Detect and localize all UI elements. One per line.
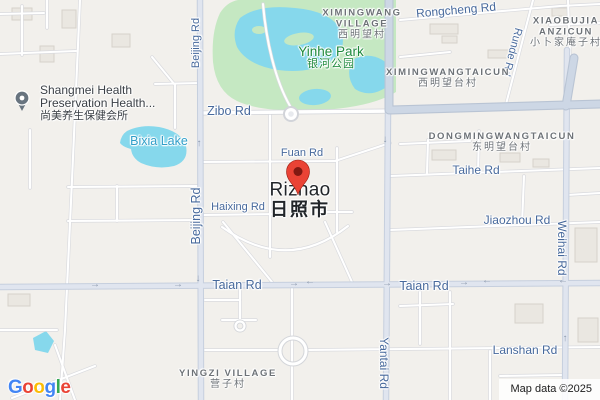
road-label-jiaozhou: Jiaozhou Rd (484, 213, 551, 227)
road-label-beijing: Beijing Rd (190, 18, 202, 68)
oneway-arrow-icon: ↓ (383, 135, 388, 145)
village-label-xiaobujia: XIAOBUJIA ANZICUN 小卜家庵子村 (530, 16, 600, 49)
oneway-arrow-icon: ↓ (196, 274, 201, 284)
road-label-weihai: Weihai Rd (555, 220, 569, 275)
road-label-taihe: Taihe Rd (452, 163, 499, 177)
destination-pin[interactable] (283, 158, 313, 196)
park-label-yinhe: Yinhe Park 银河公园 (298, 45, 364, 71)
road-label-taian: Taian Rd (399, 279, 448, 293)
map-canvas[interactable]: → → → → → ← ← ← ↑ ↑ ↓ ↓ Rongcheng Rd Run… (0, 0, 600, 400)
village-label-yingzi: YINGZI VILLAGE 营子村 (179, 368, 277, 390)
oneway-arrow-icon: ↑ (197, 139, 202, 149)
oneway-arrow-icon: → (382, 279, 392, 289)
logo-letter: G (8, 377, 22, 398)
logo-letter: o (33, 377, 44, 398)
poi-label-shangmei: Shangmei Health Preservation Health... 尚… (40, 84, 155, 123)
oneway-arrow-icon: → (289, 279, 299, 289)
oneway-arrow-icon: ← (558, 276, 568, 286)
village-label-ximingwang: XIMINGWANG VILLAGE 西明望村 (322, 8, 401, 41)
logo-letter: o (22, 377, 33, 398)
oneway-arrow-icon: → (90, 280, 100, 290)
oneway-arrow-icon: ← (305, 277, 315, 287)
poi-pin-shangmei[interactable] (14, 90, 30, 112)
map-attribution: Map data ©2025 (499, 379, 600, 400)
road-label-taian: Taian Rd (212, 278, 261, 292)
logo-letter: g (45, 377, 56, 398)
water-label-bixia-lake: Bixia Lake (130, 134, 188, 148)
road-label-lanshan: Lanshan Rd (493, 343, 558, 357)
road-label-haixing: Haixing Rd (211, 201, 265, 213)
road-label-zibo: Zibo Rd (207, 104, 251, 118)
oneway-arrow-icon: → (459, 278, 469, 288)
village-label-dongmingwangtaicun: DONGMINGWANGTAICUN 东明望台村 (429, 131, 576, 153)
logo-letter: e (60, 377, 70, 398)
oneway-arrow-icon: → (173, 280, 183, 290)
oneway-arrow-icon: ← (482, 276, 492, 286)
google-logo[interactable]: Google (8, 377, 70, 399)
village-label-ximingwangtaicun: XIMINGWANGTAICUN 西明望台村 (386, 67, 510, 89)
road-label-beijing: Beijing Rd (189, 188, 203, 245)
oneway-arrow-icon: ↑ (563, 334, 568, 344)
road-label-yantai: Yantai Rd (377, 337, 391, 389)
